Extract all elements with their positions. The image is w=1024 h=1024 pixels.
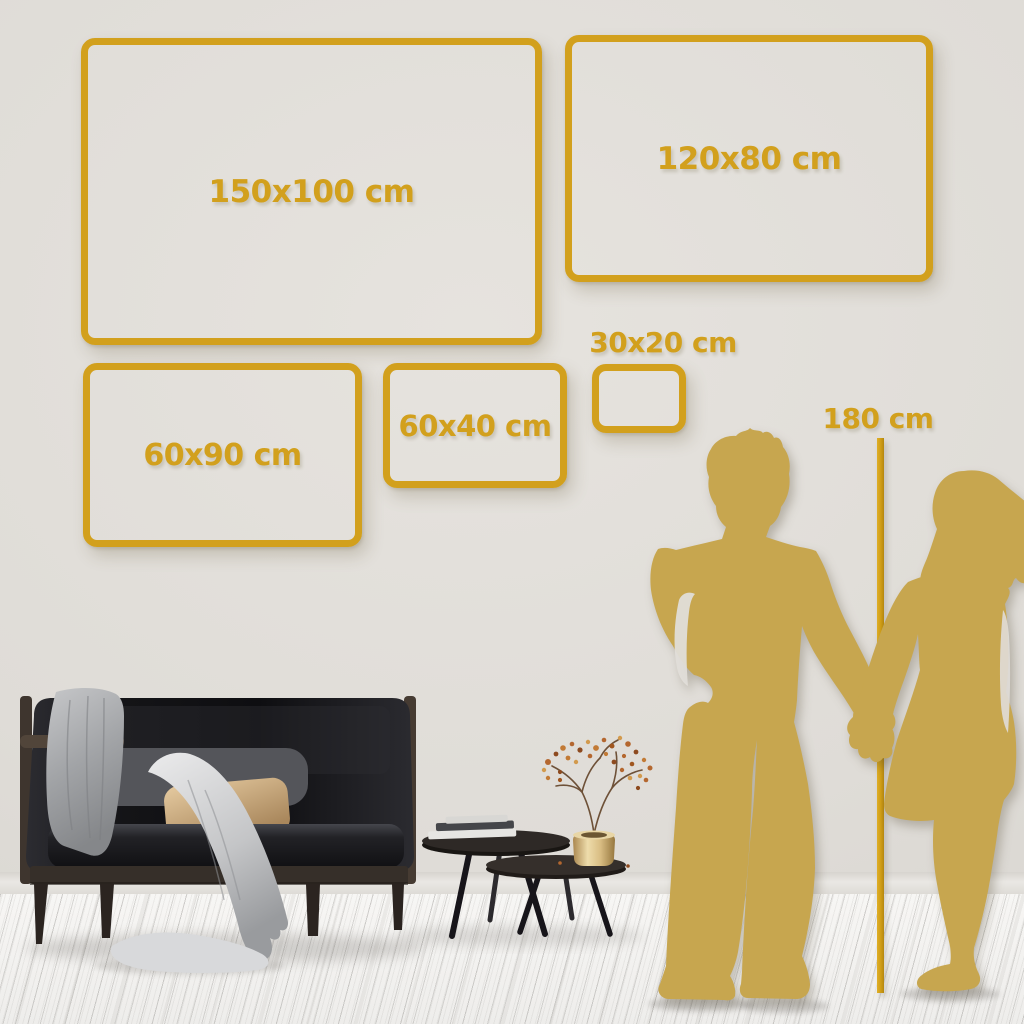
size-guide-scene: 150x100 cm 120x80 cm 60x90 cm 60x40 cm 3…: [0, 0, 1024, 1024]
couple-silhouette: [0, 0, 1024, 1024]
woman-silhouette: [847, 470, 1024, 991]
